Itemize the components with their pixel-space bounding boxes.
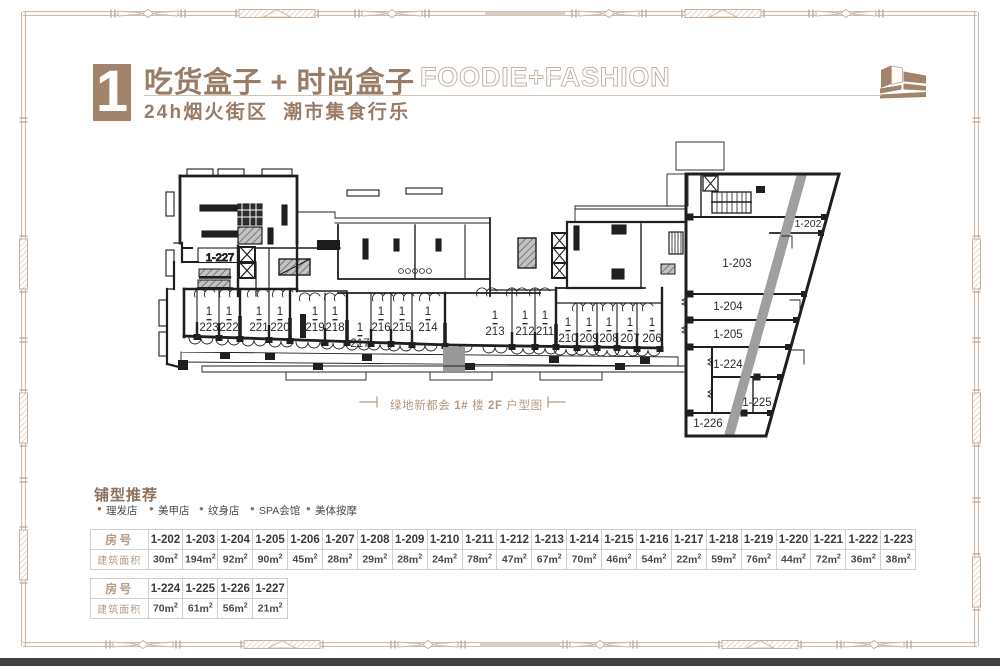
svg-text:1: 1 [649, 317, 655, 329]
svg-text:1: 1 [226, 306, 232, 318]
svg-text:1-203: 1-203 [722, 258, 751, 270]
svg-text:1: 1 [606, 317, 612, 329]
svg-text:1-226: 1-226 [693, 418, 722, 430]
svg-text:208: 208 [599, 333, 618, 345]
svg-text:1: 1 [586, 317, 592, 329]
svg-text:220: 220 [270, 322, 289, 334]
svg-text:213: 213 [485, 326, 504, 338]
svg-text:1-224: 1-224 [713, 359, 743, 371]
svg-text:1: 1 [256, 306, 262, 318]
svg-text:219: 219 [305, 322, 324, 334]
svg-text:215: 215 [392, 322, 411, 334]
svg-text:1-204: 1-204 [713, 301, 743, 313]
svg-text:1: 1 [492, 310, 498, 322]
svg-text:1: 1 [206, 306, 212, 318]
svg-text:1-205: 1-205 [713, 329, 742, 341]
svg-text:218: 218 [325, 322, 344, 334]
svg-text:1: 1 [277, 306, 283, 318]
svg-text:207: 207 [620, 333, 639, 345]
svg-text:209: 209 [579, 333, 598, 345]
svg-text:214: 214 [418, 322, 438, 334]
svg-text:1: 1 [425, 306, 431, 318]
svg-text:1: 1 [312, 306, 318, 318]
svg-text:1-202: 1-202 [795, 218, 822, 230]
svg-text:217: 217 [350, 338, 369, 350]
svg-text:1: 1 [357, 322, 363, 334]
svg-text:216: 216 [371, 322, 390, 334]
svg-text:222: 222 [219, 322, 238, 334]
svg-text:210: 210 [558, 333, 577, 345]
svg-text:212: 212 [515, 326, 534, 338]
svg-text:206: 206 [642, 333, 661, 345]
svg-text:1: 1 [542, 310, 548, 322]
svg-text:221: 221 [249, 322, 268, 334]
svg-text:1: 1 [378, 306, 384, 318]
svg-text:1: 1 [522, 310, 528, 322]
svg-text:1-227: 1-227 [206, 252, 234, 264]
svg-text:223: 223 [199, 322, 218, 334]
svg-text:1: 1 [332, 306, 338, 318]
svg-text:211: 211 [536, 326, 554, 338]
svg-text:1: 1 [627, 317, 633, 329]
svg-text:1-225: 1-225 [742, 397, 771, 409]
svg-text:1: 1 [565, 317, 571, 329]
svg-text:1: 1 [399, 306, 405, 318]
